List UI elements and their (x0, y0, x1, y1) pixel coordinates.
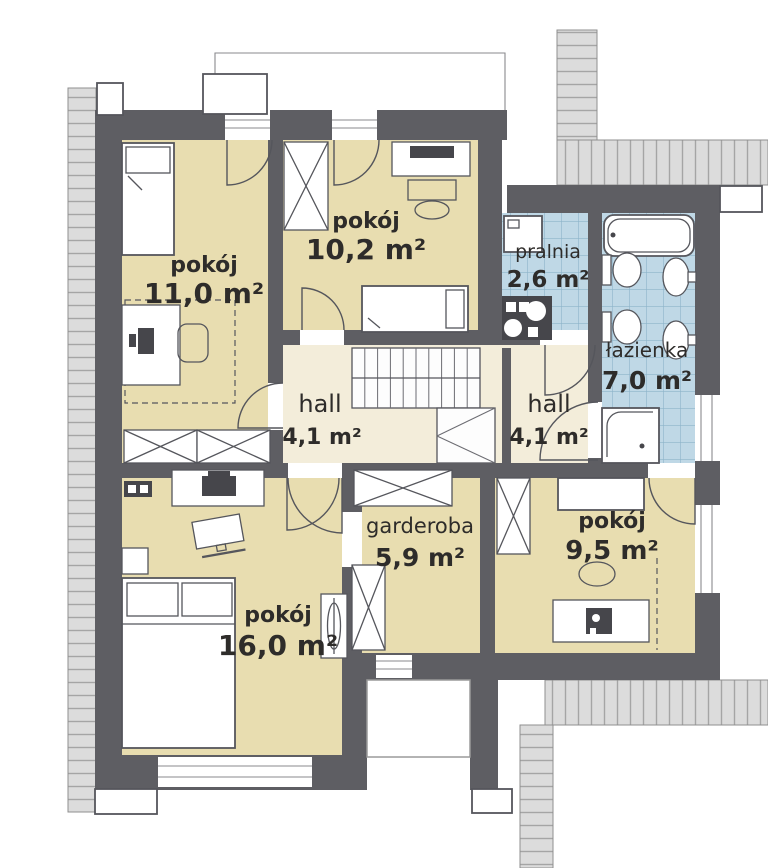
chimney-bottom-left (95, 789, 157, 814)
wall-pokoj10-right (478, 140, 502, 345)
computer-desk (553, 600, 649, 642)
bathtub (604, 215, 694, 256)
label-pokoj9-area: 9,5 m² (565, 536, 659, 566)
wardrobe (352, 565, 385, 650)
window-garderoba (376, 655, 412, 678)
wall-garderoba-pokoj9 (480, 463, 495, 653)
wardrobe (124, 430, 270, 463)
label-hall2-name: hall (527, 390, 570, 418)
label-pralnia-area: 2,6 m² (507, 267, 590, 293)
wardrobe (497, 478, 530, 554)
label-pokoj10-name: pokój (332, 209, 400, 234)
roof-strip-bottom-right (545, 680, 768, 725)
label-pokoj10-area: 10,2 m² (306, 233, 426, 266)
toilet (602, 253, 641, 287)
floor-plan-drawing: pokój 11,0 m² pokój 10,2 m² pralnia 2,6 … (0, 0, 768, 868)
niche (367, 680, 470, 757)
wall-niche-right (470, 653, 498, 790)
label-pokoj16-area: 16,0 m² (218, 629, 338, 662)
roof-strip-top-right-vertical (557, 30, 597, 140)
chimney-bottom-center (472, 789, 512, 813)
wall-socket-icon (124, 481, 152, 497)
shower (602, 408, 659, 463)
label-hall1-name: hall (298, 390, 341, 418)
dresser (558, 478, 644, 510)
bed-double (122, 578, 235, 748)
window-right-bathroom (695, 395, 720, 461)
wardrobe (284, 142, 328, 230)
printer-desk (172, 470, 264, 506)
label-garderoba-area: 5,9 m² (375, 543, 465, 572)
window-bottom-pokoj16 (158, 757, 312, 787)
label-pokoj16-name: pokój (244, 603, 312, 628)
roof-strip-bottom-center (520, 725, 553, 868)
label-lazienka-area: 7,0 m² (602, 366, 692, 395)
wall-top-right-exterior (507, 185, 720, 213)
bed-single (122, 143, 174, 255)
label-garderoba-name: garderoba (366, 514, 474, 538)
wall-bottom-right-exterior (470, 653, 720, 680)
label-hall2-area: 4,1 m² (509, 425, 588, 450)
wall-niche-left (342, 653, 367, 757)
nightstand (122, 548, 148, 574)
label-pokoj9-name: pokój (578, 509, 646, 534)
label-hall1-area: 4,1 m² (282, 425, 361, 450)
label-pokoj11-name: pokój (170, 253, 238, 278)
wall-top-mid (377, 110, 507, 140)
boiler (502, 296, 552, 340)
label-lazienka-name: łazienka (606, 338, 688, 362)
roof-strip-top-right (557, 140, 768, 185)
label-pralnia-name: pralnia (515, 241, 581, 263)
floor-plan: pokój 11,0 m² pokój 10,2 m² pralnia 2,6 … (0, 0, 768, 868)
window-right-pokoj9 (695, 505, 720, 593)
label-pokoj11-area: 11,0 m² (144, 277, 264, 310)
wall-top-pier (270, 110, 332, 140)
chimney-top (203, 74, 267, 114)
chimney-right (720, 186, 762, 212)
wardrobe (354, 470, 452, 506)
stair-winders (437, 408, 495, 463)
chimney-top-left (97, 83, 123, 115)
bed-single (362, 286, 468, 332)
wall-left-exterior (95, 110, 122, 790)
roof-strip-left (68, 88, 96, 812)
